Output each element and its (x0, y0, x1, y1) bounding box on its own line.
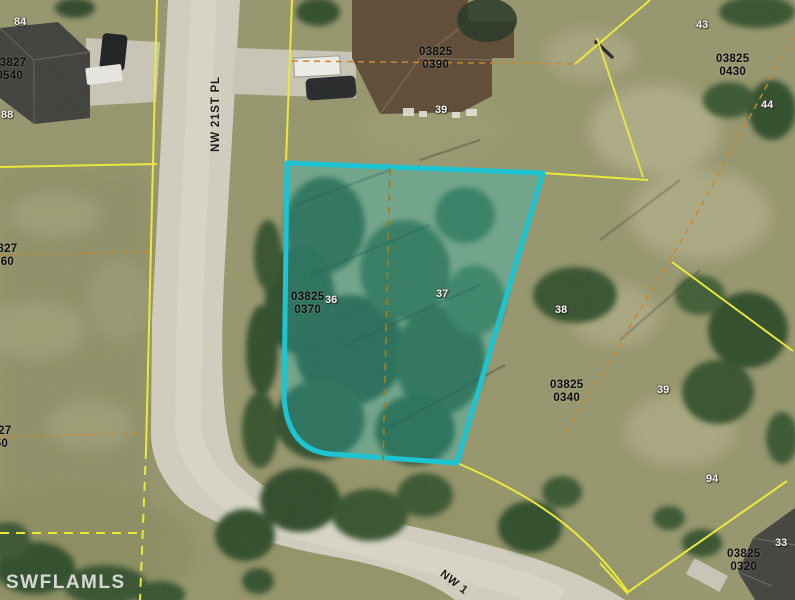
aerial-map: 84 03827 0540 88 NW 21ST PL 03825 0390 3… (0, 0, 795, 600)
aerial-photo-canvas (0, 0, 795, 600)
